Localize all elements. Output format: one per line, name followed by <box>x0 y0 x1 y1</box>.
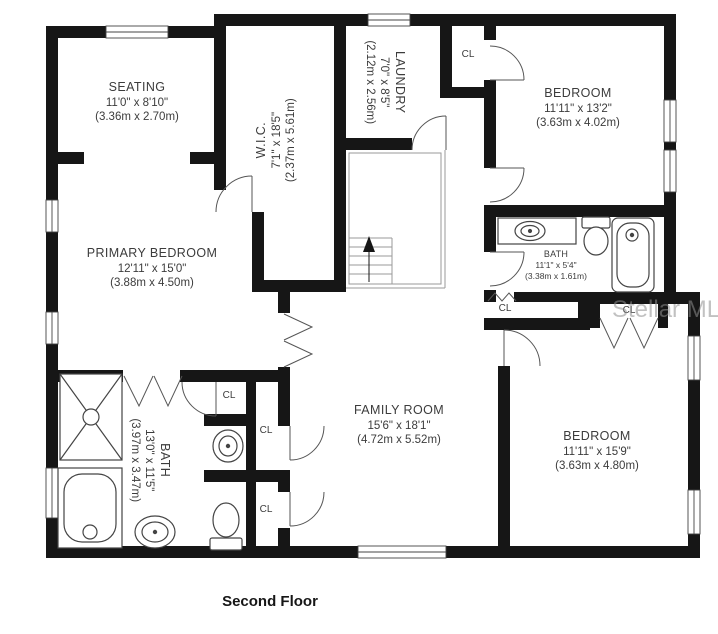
window <box>46 468 58 518</box>
closet-door-bath <box>182 382 216 416</box>
shower <box>60 374 122 460</box>
closet-label-top: CL <box>456 49 480 60</box>
closet-label-family-lower: CL <box>254 504 278 515</box>
room-label-bedroom-bottom: BEDROOM 11'11" x 15'9" (3.63m x 4.80m) <box>512 429 682 473</box>
top-bedroom-door <box>490 168 524 202</box>
room-label-primary-bedroom: PRIMARY BEDROOM 12'11" x 15'0" (3.88m x … <box>62 246 242 290</box>
closet-b-door <box>290 492 324 526</box>
room-label-laundry: LAUNDRY 7'0" x 8'5" (2.12m x 2.56m) <box>363 7 407 157</box>
window <box>688 490 700 534</box>
double-door-family <box>284 314 312 367</box>
vanity-top-bath <box>498 218 576 244</box>
sink-pedestal <box>213 430 243 462</box>
floor-title: Second Floor <box>180 593 360 610</box>
window <box>358 546 446 558</box>
floor-plan-canvas: SEATING 11'0" x 8'10" (3.36m x 2.70m) W.… <box>0 0 718 634</box>
laundry-door <box>412 116 446 150</box>
window <box>46 312 58 344</box>
bathtub-left <box>58 468 122 548</box>
window <box>664 100 676 142</box>
room-label-bath-bottom: BATH 13'0" x 11'5" (3.97m x 3.47m) <box>128 385 172 535</box>
stairs <box>346 150 445 288</box>
toilet-left <box>210 503 242 550</box>
window <box>688 336 700 380</box>
stairs-up-arrow <box>363 236 375 282</box>
window <box>46 200 58 232</box>
window <box>106 26 168 38</box>
closet-label-family-upper: CL <box>254 425 278 436</box>
room-label-bedroom-top: BEDROOM 11'11" x 13'2" (3.63m x 4.02m) <box>493 86 663 130</box>
bottom-bedroom-door <box>504 330 540 366</box>
room-label-seating: SEATING 11'0" x 8'10" (3.36m x 2.70m) <box>57 80 217 124</box>
closet-door-top-bedroom <box>490 46 524 80</box>
closet-label-mid: CL <box>493 303 517 314</box>
closet-label-bath: CL <box>217 390 241 401</box>
room-label-family-room: FAMILY ROOM 15'6" x 18'1" (4.72m x 5.52m… <box>309 403 489 447</box>
watermark: Stellar MLS <box>612 296 718 324</box>
room-label-wic: W.I.C. 7'1" x 18'5" (2.37m x 5.61m) <box>254 60 298 220</box>
room-label-bath-top: BATH 11'1" x 5'4" (3.38m x 1.61m) <box>486 249 626 282</box>
window <box>664 150 676 192</box>
